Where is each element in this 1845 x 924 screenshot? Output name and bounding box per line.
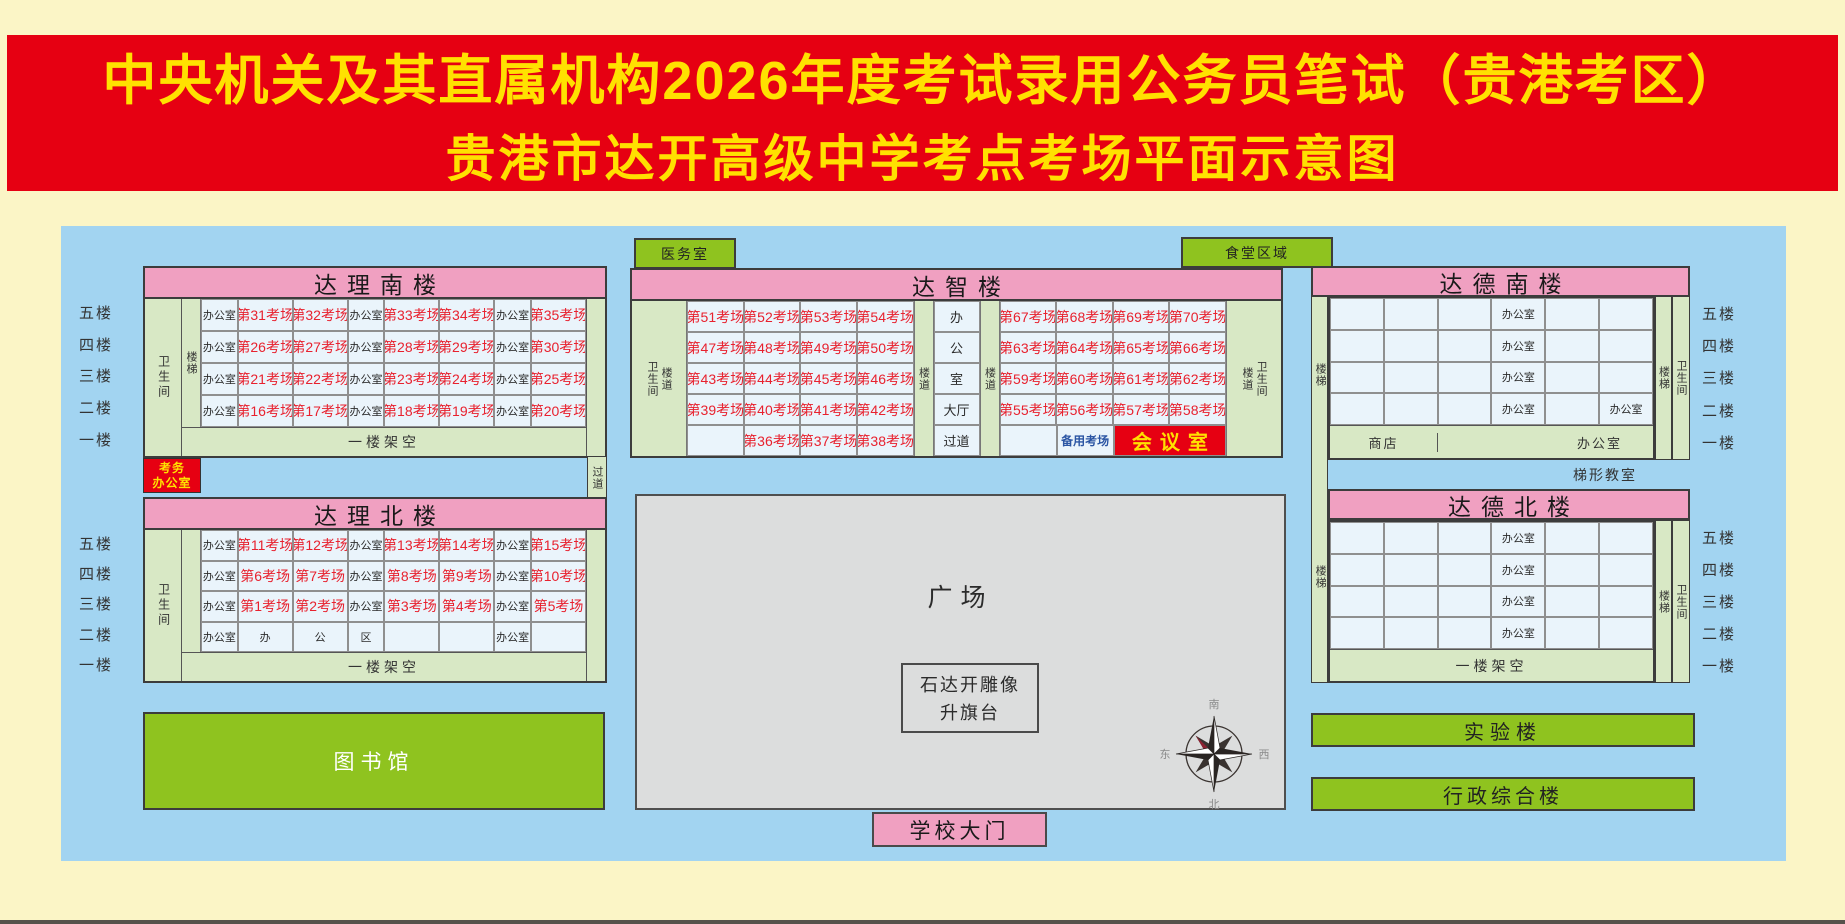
floor-label: 二楼 xyxy=(79,624,113,645)
empty-cell xyxy=(1599,330,1653,362)
exam-room-cell: 第8考场 xyxy=(384,561,439,592)
room-cell: 办公室 xyxy=(201,622,238,653)
stair-label: 楼梯 xyxy=(185,351,197,375)
toilet-label: 卫生间 xyxy=(1255,361,1267,397)
empty-cell xyxy=(1599,554,1653,586)
exam-room-cell: 第40考场 xyxy=(744,394,801,425)
exam-room-cell: 第64考场 xyxy=(1056,332,1113,363)
room-cell: 办公室 xyxy=(201,331,238,363)
ground-floor-row: 商店 办公室 xyxy=(1330,425,1653,458)
empty-cell xyxy=(1438,330,1492,362)
exam-room-cell: 第66考场 xyxy=(1169,332,1226,363)
exam-room-cell: 第24考场 xyxy=(439,363,494,395)
exam-room-cell: 第42考场 xyxy=(857,394,914,425)
exam-site-map-poster: 中央机关及其直属机构2026年度考试录用公务员笔试（贵港考区） 贵港市达开高级中… xyxy=(0,0,1845,924)
room-cell: 办公室 xyxy=(494,530,531,561)
exam-room-cell: 第1考场 xyxy=(238,591,293,622)
floor-label: 三楼 xyxy=(79,365,113,386)
dali-north-room-grid: 办公室第11考场第12考场办公室第13考场第14考场办公室第15考场办公室第6考… xyxy=(201,530,586,652)
exam-room-cell: 第55考场 xyxy=(1000,394,1057,425)
toilet-label: 卫生间 xyxy=(156,583,169,628)
hall-cell: 室 xyxy=(934,363,980,394)
empty-cell xyxy=(1330,298,1384,330)
stair-label: 楼梯 xyxy=(1314,363,1326,387)
toilet-column: 卫生间 xyxy=(145,530,182,681)
exam-room-cell: 第16考场 xyxy=(238,395,293,427)
floor-label: 四楼 xyxy=(79,334,113,355)
toilet-column: 卫生间 xyxy=(1672,520,1690,683)
empty-cell xyxy=(1330,617,1384,649)
toilet-label: 卫生间 xyxy=(1675,584,1687,620)
stair-column: 楼梯 xyxy=(182,299,201,427)
dazhi-right-room-grid: 第67考场第68考场第69考场第70考场第63考场第64考场第65考场第66考场… xyxy=(1000,301,1227,425)
empty-cell xyxy=(1384,393,1438,425)
dade-south-room-grid: 办公室办公室办公室办公室办公室 xyxy=(1330,298,1653,425)
building-title-dali-north: 达理北楼 xyxy=(145,499,605,530)
empty-cell xyxy=(1438,522,1492,554)
room-cell: 办公室 xyxy=(494,331,531,363)
toilet-column: 卫生间 xyxy=(145,299,182,456)
exam-room-cell: 第39考场 xyxy=(687,394,744,425)
toilet-label: 卫生间 xyxy=(646,361,658,397)
empty-cell xyxy=(1599,617,1653,649)
library-block: 图书馆 xyxy=(143,712,605,810)
room-cell: 办公室 xyxy=(1491,554,1545,586)
exam-room-cell: 第56考场 xyxy=(1056,394,1113,425)
canteen-block: 食堂区域 xyxy=(1181,237,1333,268)
exam-room-cell: 第21考场 xyxy=(238,363,293,395)
exam-room-cell: 第70考场 xyxy=(1169,301,1226,332)
empty-cell xyxy=(1545,617,1599,649)
exam-room-cell: 第13考场 xyxy=(384,530,439,561)
exam-room-cell: 第17考场 xyxy=(293,395,348,427)
exam-room-cell: 第49考场 xyxy=(800,332,857,363)
exam-room-cell: 第7考场 xyxy=(293,561,348,592)
exam-admin-office-line1: 考务 xyxy=(159,461,185,476)
floor-label: 四楼 xyxy=(79,563,113,584)
floor-label: 五楼 xyxy=(79,302,113,323)
empty-cell xyxy=(1438,393,1492,425)
empty-cell xyxy=(1330,586,1384,618)
exam-room-cell: 第18考场 xyxy=(384,395,439,427)
compass-south-label: 南 xyxy=(1209,698,1220,711)
stair-label: 楼梯 xyxy=(1657,366,1669,390)
exam-room-cell: 第53考场 xyxy=(800,301,857,332)
page-bottom-edge xyxy=(0,920,1845,924)
empty-cell xyxy=(1330,362,1384,394)
room-cell: 办公室 xyxy=(348,395,385,427)
floor-label: 二楼 xyxy=(1702,623,1736,644)
empty-cell xyxy=(384,622,439,653)
exam-room-cell: 第19考场 xyxy=(439,395,494,427)
room-cell: 办公室 xyxy=(494,622,531,653)
room-cell: 办公室 xyxy=(201,591,238,622)
empty-cell xyxy=(1330,522,1384,554)
empty-cell xyxy=(1599,522,1653,554)
floor-label: 一楼 xyxy=(1702,655,1736,676)
stair-column xyxy=(182,530,201,652)
room-cell: 办公室 xyxy=(1491,298,1545,330)
room-cell: 办公室 xyxy=(1491,362,1545,394)
stair-column: 楼梯 xyxy=(1655,520,1672,683)
exam-admin-office-line2: 办公室 xyxy=(152,476,191,491)
floor-label: 五楼 xyxy=(1702,527,1736,548)
exam-room-cell: 第33考场 xyxy=(384,299,439,331)
exam-room-cell: 第41考场 xyxy=(800,394,857,425)
exam-room-cell: 第67考场 xyxy=(1000,301,1057,332)
exam-room-cell: 第52考场 xyxy=(744,301,801,332)
edge-column xyxy=(586,299,605,456)
room-cell: 公 xyxy=(293,622,348,653)
reserve-room-cell: 备用考场 xyxy=(1057,425,1114,456)
empty-cell xyxy=(1384,298,1438,330)
room-cell: 办公室 xyxy=(201,530,238,561)
floor-label: 三楼 xyxy=(1702,367,1736,388)
floor-label: 一楼 xyxy=(79,429,113,450)
room-cell: 办公室 xyxy=(348,363,385,395)
aisle-column: 楼道 xyxy=(980,301,1000,456)
admin-building-label: 行政综合楼 xyxy=(1443,780,1563,809)
room-cell: 办公室 xyxy=(348,561,385,592)
compass-east-label: 东 xyxy=(1160,748,1171,761)
empty-cell xyxy=(1438,554,1492,586)
exam-room-cell: 第29考场 xyxy=(439,331,494,363)
hall-cell: 过道 xyxy=(934,425,980,456)
aisle-label: 楼道 xyxy=(983,367,995,391)
dade-stair-strip: 楼梯 楼梯 xyxy=(1311,296,1328,683)
exam-room-cell: 第65考场 xyxy=(1113,332,1170,363)
dali-north-floor-labels: 五楼四楼三楼二楼一楼 xyxy=(72,528,120,680)
building-title-dali-south: 达理南楼 xyxy=(145,268,605,299)
exam-room-cell: 第4考场 xyxy=(439,591,494,622)
exam-room-cell: 第22考场 xyxy=(293,363,348,395)
aisle-label: 楼道 xyxy=(1241,367,1253,391)
room-cell: 办公室 xyxy=(201,561,238,592)
toilet-label: 卫生间 xyxy=(156,355,169,400)
exam-room-cell: 第2考场 xyxy=(293,591,348,622)
empty-cell xyxy=(1384,330,1438,362)
room-cell: 办公室 xyxy=(348,530,385,561)
empty-cell xyxy=(1384,617,1438,649)
clinic-block: 医务室 xyxy=(634,238,736,269)
room-cell: 办 xyxy=(238,622,293,653)
exam-room-cell: 第68考场 xyxy=(1056,301,1113,332)
exam-room-cell: 第62考场 xyxy=(1169,363,1226,394)
empty-cell xyxy=(1384,586,1438,618)
empty-cell xyxy=(1599,298,1653,330)
room-cell: 办公室 xyxy=(348,331,385,363)
room-cell: 办公室 xyxy=(201,395,238,427)
plaza-label: 广场 xyxy=(637,578,1284,614)
room-cell: 办公室 xyxy=(348,299,385,331)
exam-room-cell: 第44考场 xyxy=(744,363,801,394)
empty-cell xyxy=(1330,330,1384,362)
empty-cell xyxy=(1384,362,1438,394)
exam-room-cell: 第20考场 xyxy=(531,395,586,427)
exam-admin-office: 考务 办公室 xyxy=(143,458,201,493)
building-title-dade-north: 达德北楼 xyxy=(1328,489,1690,520)
exam-room-cell: 第35考场 xyxy=(531,299,586,331)
room-cell: 办公室 xyxy=(1599,393,1653,425)
floor-label: 三楼 xyxy=(1702,591,1736,612)
toilet-aisle-column-left: 卫生间 楼道 xyxy=(632,301,687,456)
exam-room-cell: 第60考场 xyxy=(1056,363,1113,394)
empty-cell xyxy=(1000,425,1057,456)
exam-room-cell: 第61考场 xyxy=(1113,363,1170,394)
dade-north-room-grid: 办公室办公室办公室办公室 xyxy=(1330,522,1653,649)
building-title-dade-south: 达德南楼 xyxy=(1311,266,1690,297)
floor-label: 五楼 xyxy=(1702,303,1736,324)
empty-cell xyxy=(1599,362,1653,394)
empty-cell xyxy=(1330,554,1384,586)
exam-room-cell: 第23考场 xyxy=(384,363,439,395)
exam-room-cell: 第36考场 xyxy=(744,425,801,456)
floor-label: 四楼 xyxy=(1702,559,1736,580)
room-cell: 办公室 xyxy=(1491,393,1545,425)
exam-room-cell: 第12考场 xyxy=(293,530,348,561)
empty-cell xyxy=(1545,298,1599,330)
empty-cell xyxy=(1438,362,1492,394)
empty-cell xyxy=(1384,554,1438,586)
empty-cell xyxy=(687,425,744,456)
canteen-label: 食堂区域 xyxy=(1225,243,1289,263)
corridor-strip: 过道 xyxy=(587,457,607,498)
exam-room-cell: 第57考场 xyxy=(1113,394,1170,425)
clinic-label: 医务室 xyxy=(661,244,709,264)
banner-title-line1: 中央机关及其直属机构2026年度考试录用公务员笔试（贵港考区） xyxy=(102,36,1742,115)
floor-label: 二楼 xyxy=(1702,400,1736,421)
room-cell: 办公室 xyxy=(494,395,531,427)
floor-label: 五楼 xyxy=(79,533,113,554)
exam-room-cell: 第27考场 xyxy=(293,331,348,363)
empty-cell xyxy=(1384,522,1438,554)
hall-cell: 大厅 xyxy=(934,394,980,425)
dade-south-floor-labels: 五楼四楼三楼二楼一楼 xyxy=(1694,297,1744,459)
exam-room-cell: 第25考场 xyxy=(531,363,586,395)
room-cell: 办公室 xyxy=(494,363,531,395)
room-cell: 办公室 xyxy=(1491,617,1545,649)
floor-label: 四楼 xyxy=(1702,335,1736,356)
statue-label-line1: 石达开雕像 xyxy=(920,671,1020,697)
exam-room-cell: 第3考场 xyxy=(384,591,439,622)
room-cell: 办公室 xyxy=(201,299,238,331)
school-gate-label: 学校大门 xyxy=(910,815,1010,845)
exam-room-cell: 第50考场 xyxy=(857,332,914,363)
school-gate: 学校大门 xyxy=(872,812,1047,847)
empty-cell xyxy=(1599,586,1653,618)
exam-room-cell: 第10考场 xyxy=(531,561,586,592)
room-cell: 区 xyxy=(348,622,385,653)
dali-south-room-grid: 办公室第31考场第32考场办公室第33考场第34考场办公室第35考场办公室第26… xyxy=(201,299,586,427)
building-dade-north: 办公室办公室办公室办公室 一楼架空 xyxy=(1328,520,1655,683)
empty-cell xyxy=(1438,617,1492,649)
aisle-column: 楼道 xyxy=(914,301,934,456)
corridor-label: 过道 xyxy=(591,466,603,490)
exam-room-cell: 第28考场 xyxy=(384,331,439,363)
exam-room-cell: 第48考场 xyxy=(744,332,801,363)
empty-cell xyxy=(439,622,494,653)
lab-building-label: 实验楼 xyxy=(1464,716,1542,745)
room-cell: 办公室 xyxy=(201,363,238,395)
admin-building-block: 行政综合楼 xyxy=(1311,777,1695,811)
floor-label: 一楼 xyxy=(1702,432,1736,453)
dazhi-mid-column: 办公室大厅过道 xyxy=(934,301,980,456)
aisle-label: 楼道 xyxy=(917,367,929,391)
building-dali-south: 达理南楼 卫生间 楼梯 办公室第31考场第32考场办公室第33考场第34考场办公… xyxy=(143,266,607,458)
exam-room-cell: 第69考场 xyxy=(1113,301,1170,332)
edge-column xyxy=(586,530,605,681)
exam-room-cell: 第9考场 xyxy=(439,561,494,592)
empty-cell xyxy=(1438,586,1492,618)
empty-cell xyxy=(1545,362,1599,394)
stair-column: 楼梯 xyxy=(1655,296,1672,460)
exam-room-cell: 第5考场 xyxy=(531,591,586,622)
exam-room-cell: 第38考场 xyxy=(857,425,914,456)
banner-title-line2: 贵港市达开高级中学考点考场平面示意图 xyxy=(446,119,1400,191)
empty-cell xyxy=(1545,554,1599,586)
room-cell: 办公室 xyxy=(494,561,531,592)
exam-room-cell: 第30考场 xyxy=(531,331,586,363)
aisle-label: 楼道 xyxy=(660,367,672,391)
room-cell: 办公室 xyxy=(494,299,531,331)
building-dade-south: 办公室办公室办公室办公室办公室 商店 办公室 xyxy=(1328,296,1655,460)
exam-room-cell: 第43考场 xyxy=(687,363,744,394)
empty-cell xyxy=(1545,393,1599,425)
empty-cell xyxy=(1545,586,1599,618)
lab-building-block: 实验楼 xyxy=(1311,713,1695,747)
dade-north-floor-labels: 五楼四楼三楼二楼一楼 xyxy=(1694,521,1744,682)
toilet-aisle-column-right: 楼道 卫生间 xyxy=(1226,301,1281,456)
room-cell: 办公室 xyxy=(348,591,385,622)
exam-room-cell: 第31考场 xyxy=(238,299,293,331)
room-cell: 办公室 xyxy=(494,591,531,622)
exam-room-cell: 第58考场 xyxy=(1169,394,1226,425)
exam-room-cell: 第32考场 xyxy=(293,299,348,331)
building-dali-north: 达理北楼 卫生间 办公室第11考场第12考场办公室第13考场第14考场办公室第1… xyxy=(143,497,607,683)
toilet-column: 卫生间 xyxy=(1672,296,1690,460)
exam-room-cell: 第59考场 xyxy=(1000,363,1057,394)
exam-room-cell: 第51考场 xyxy=(687,301,744,332)
statue-label-line2: 升旗台 xyxy=(940,699,1000,725)
meeting-room-cell: 会议室 xyxy=(1114,425,1226,456)
plaza: 广场 石达开雕像 升旗台 南 北 东 西 xyxy=(635,494,1286,810)
exam-room-cell: 第34考场 xyxy=(439,299,494,331)
toilet-label: 卫生间 xyxy=(1675,360,1687,396)
hall-cell: 办 xyxy=(934,301,980,332)
exam-room-cell: 第11考场 xyxy=(238,530,293,561)
trapezoid-classroom-label: 梯形教室 xyxy=(1545,464,1665,486)
room-cell: 办公室 xyxy=(1491,330,1545,362)
building-dazhi: 达智楼 卫生间 楼道 第51考场第52考场第53考场第54考场第47考场第48考… xyxy=(630,268,1283,458)
statue-flag-platform: 石达开雕像 升旗台 xyxy=(901,663,1039,733)
compass-west-label: 西 xyxy=(1259,749,1270,761)
title-banner: 中央机关及其直属机构2026年度考试录用公务员笔试（贵港考区） 贵港市达开高级中… xyxy=(7,35,1838,191)
dali-south-floor-labels: 五楼四楼三楼二楼一楼 xyxy=(72,297,120,455)
compass-rose-icon: 南 北 东 西 xyxy=(1154,694,1274,814)
exam-room-cell: 第26考场 xyxy=(238,331,293,363)
ground-floor-open: 一楼架空 xyxy=(182,427,586,456)
empty-cell xyxy=(1545,330,1599,362)
ground-floor-open: 一楼架空 xyxy=(182,652,586,681)
floor-label: 三楼 xyxy=(79,593,113,614)
exam-room-cell: 第46考场 xyxy=(857,363,914,394)
floor-label: 一楼 xyxy=(79,654,113,675)
shop-cell: 商店 xyxy=(1330,433,1438,452)
empty-cell xyxy=(531,622,586,653)
compass-north-label: 北 xyxy=(1209,798,1220,811)
empty-cell xyxy=(1438,298,1492,330)
empty-cell xyxy=(1545,522,1599,554)
hall-cell: 公 xyxy=(934,332,980,363)
exam-room-cell: 第15考场 xyxy=(531,530,586,561)
room-cell: 办公室 xyxy=(1491,586,1545,618)
exam-room-cell: 第14考场 xyxy=(439,530,494,561)
exam-room-cell: 第54考场 xyxy=(857,301,914,332)
office-ground-cell: 办公室 xyxy=(1546,433,1653,452)
exam-room-cell: 第37考场 xyxy=(800,425,857,456)
exam-room-cell: 第47考场 xyxy=(687,332,744,363)
empty-cell xyxy=(1330,393,1384,425)
stair-label: 楼梯 xyxy=(1314,565,1326,589)
building-title-dazhi: 达智楼 xyxy=(632,270,1281,301)
ground-floor-open: 一楼架空 xyxy=(1330,649,1653,681)
library-label: 图书馆 xyxy=(334,746,415,776)
stair-label: 楼梯 xyxy=(1657,590,1669,614)
exam-room-cell: 第6考场 xyxy=(238,561,293,592)
dazhi-left-room-grid: 第51考场第52考场第53考场第54考场第47考场第48考场第49考场第50考场… xyxy=(687,301,914,456)
room-cell: 办公室 xyxy=(1491,522,1545,554)
exam-room-cell: 第63考场 xyxy=(1000,332,1057,363)
floor-label: 二楼 xyxy=(79,397,113,418)
exam-room-cell: 第45考场 xyxy=(800,363,857,394)
